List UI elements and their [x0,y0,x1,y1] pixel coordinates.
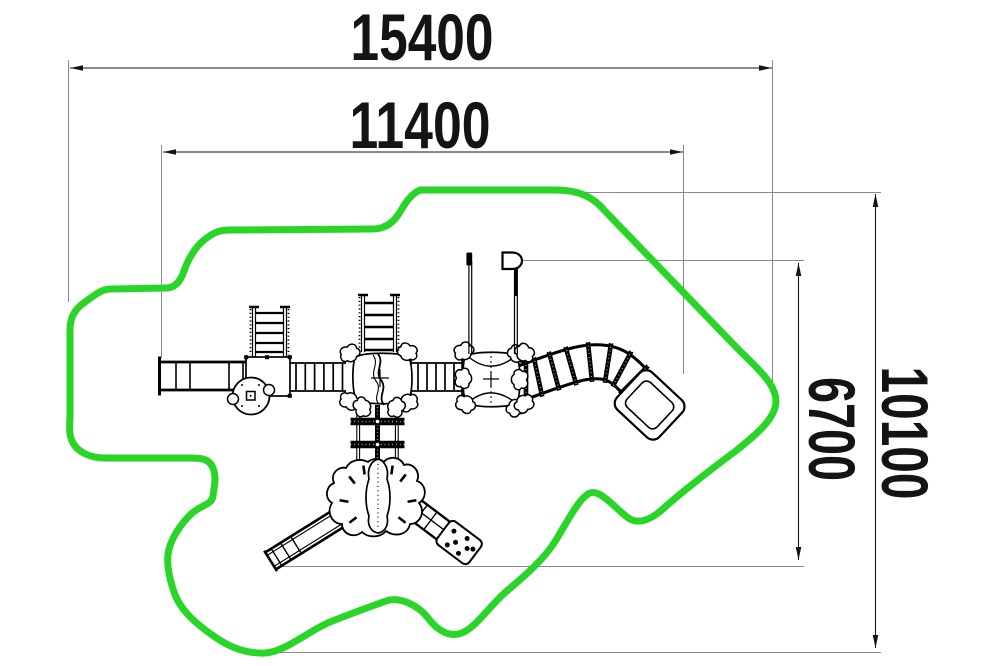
arrowhead [796,547,802,560]
arrowhead [759,65,772,71]
plan-canvas: 15400 11400 6700 10100 [0,0,1000,666]
arrowhead [796,263,802,276]
ladder-left [249,307,290,357]
bridge-rungs [296,364,343,390]
ladder-middle [358,295,400,352]
dim-label-overall-height: 10100 [868,367,942,500]
arrowhead [70,65,83,71]
pommel-poles [466,252,522,354]
rung-bridge-middle [290,363,346,391]
cross-junction-right [451,339,537,419]
bridge-rungs [418,364,454,390]
arrowhead [670,149,683,155]
dim-label-inner-height: 6700 [795,377,869,481]
tube-slide [524,342,688,443]
ladder-rungs [364,303,394,350]
flower-platform [327,458,425,537]
playground-plan-drawing: 15400 11400 6700 10100 [0,0,1000,666]
equipment [160,252,689,571]
arrowhead [873,194,879,207]
pole-cap [466,253,472,266]
arrowhead [873,635,879,648]
ladder-rungs [256,313,283,352]
walkway-rungs [176,363,243,389]
dim-label-inner-width: 11400 [350,88,491,162]
arrowhead [163,149,176,155]
pommel-seat [503,252,523,269]
dim-label-overall-width: 15400 [351,0,494,74]
rung-bridge-right [410,357,463,397]
